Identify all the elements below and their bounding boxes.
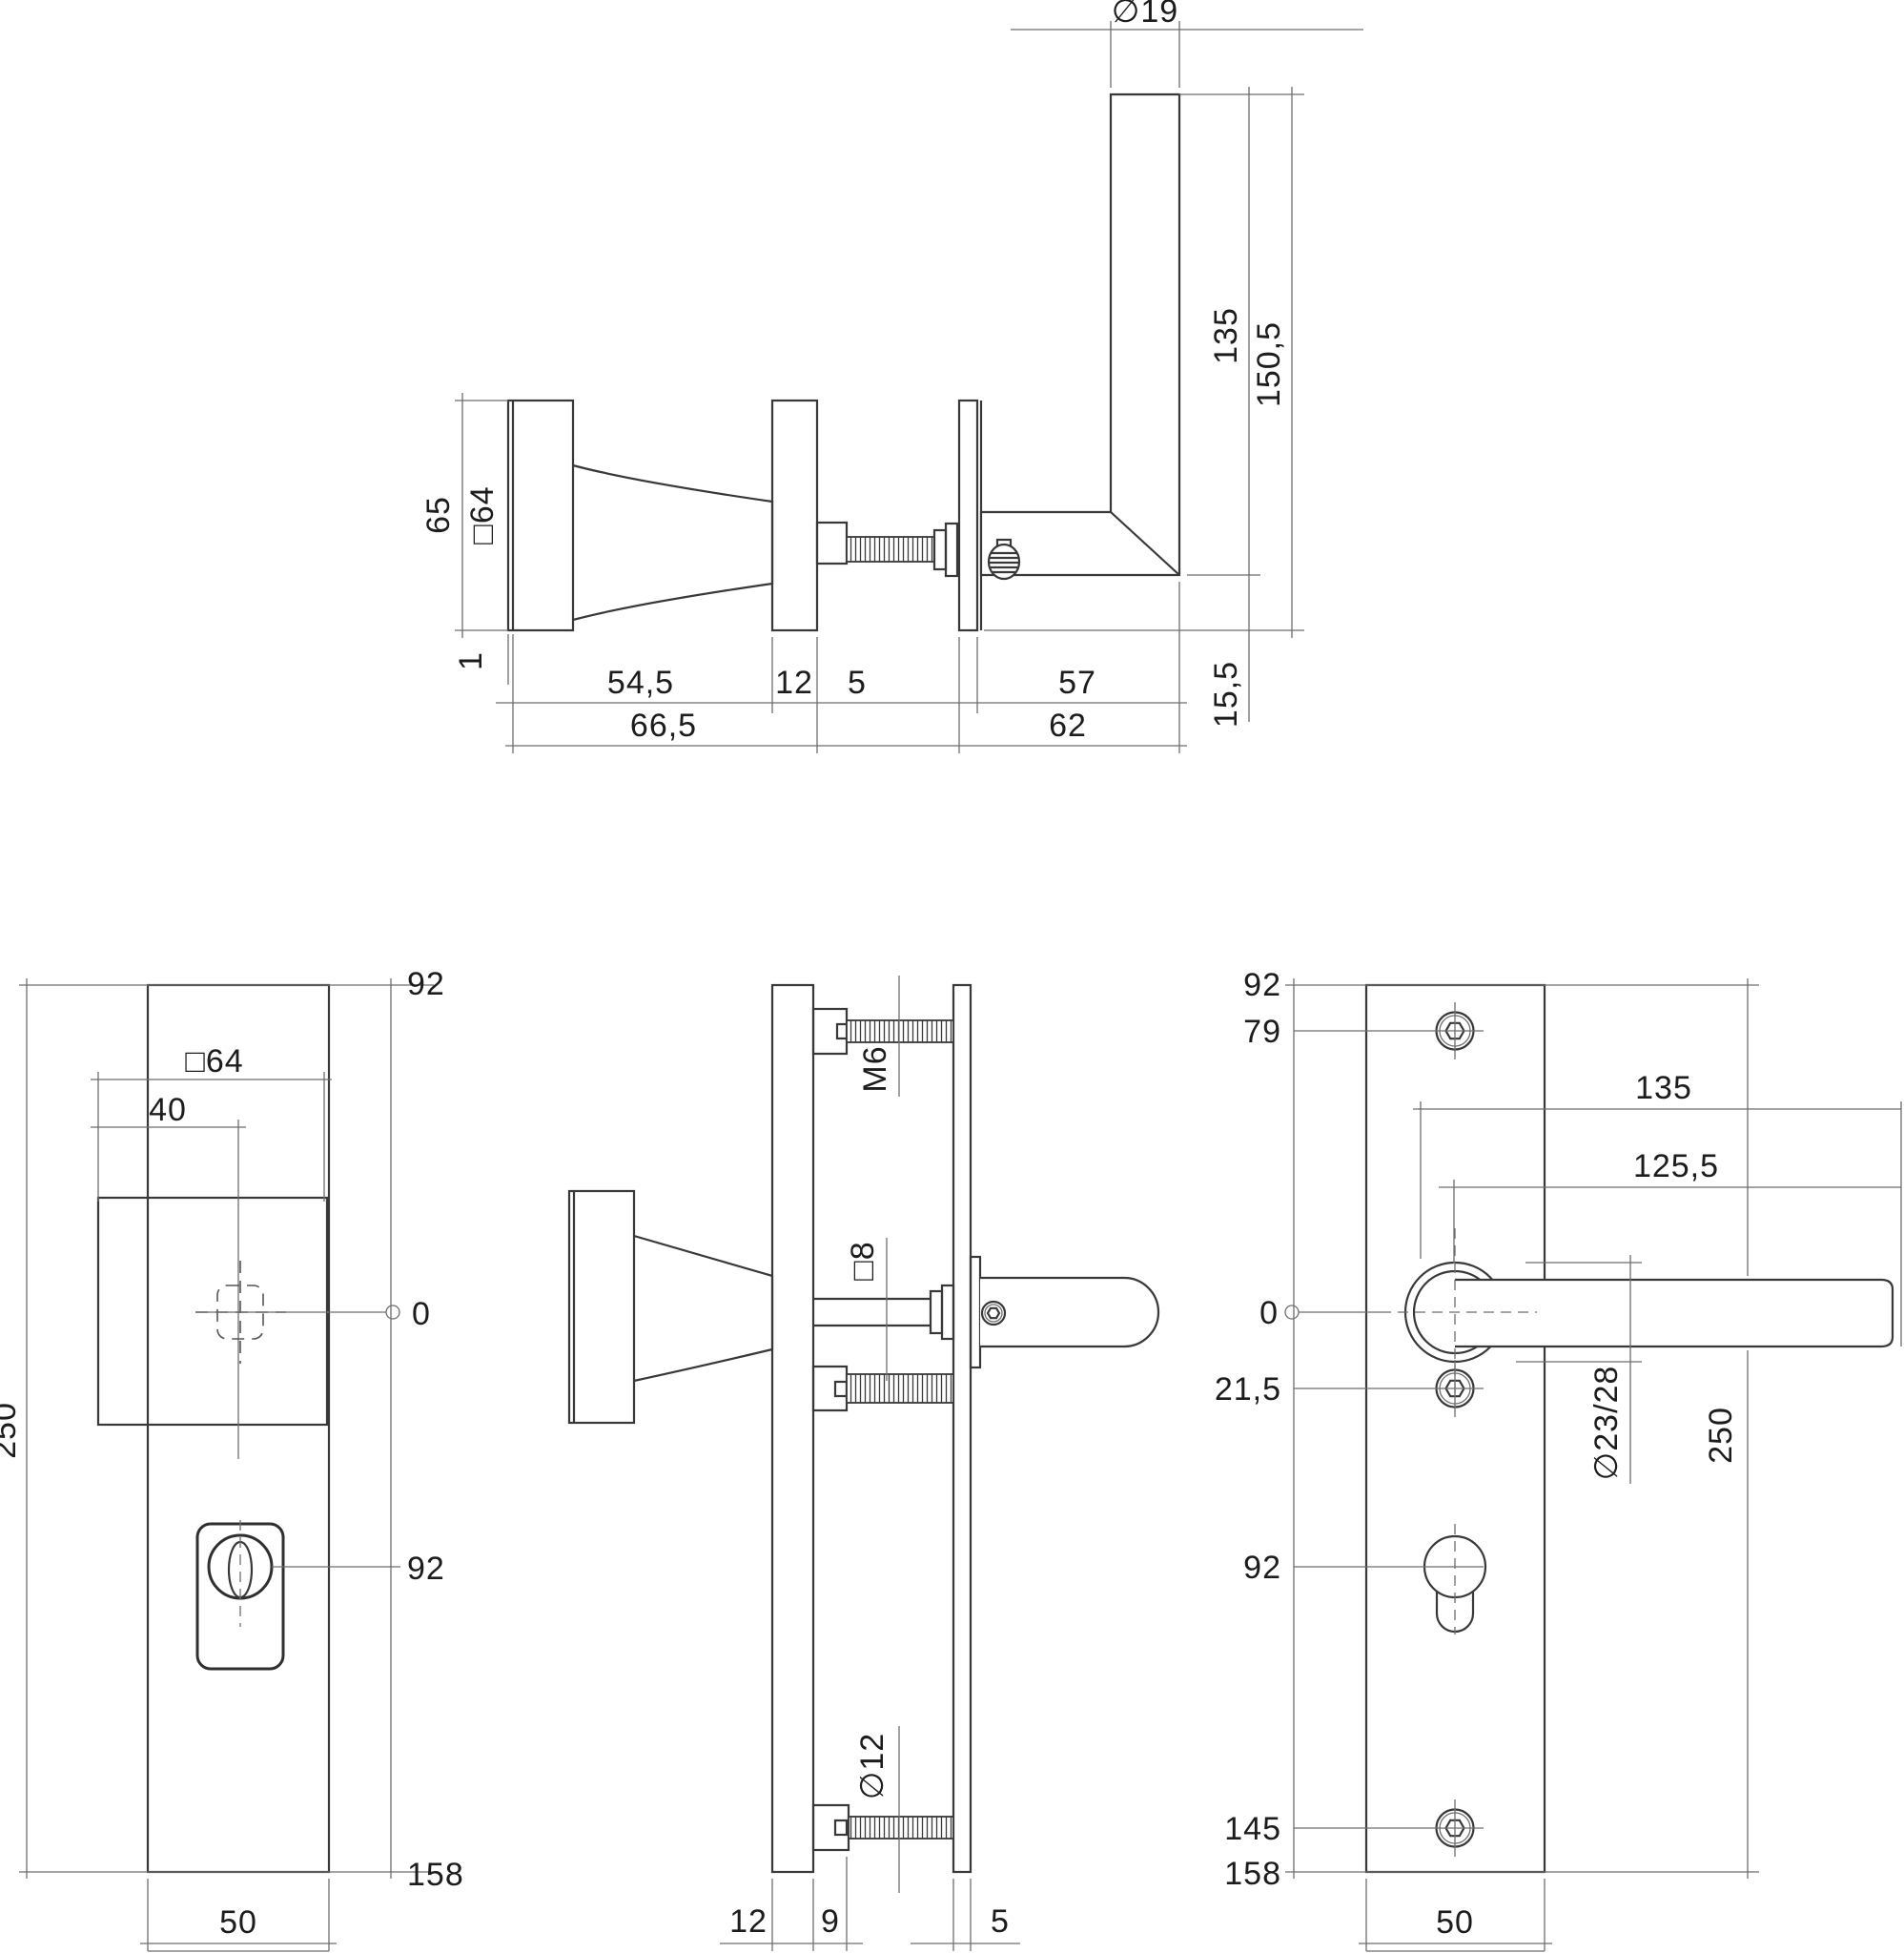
dim-label-0-left-view: 0 [412,1296,431,1332]
dim-label-12-middle: 12 [729,1903,768,1940]
dim-label-21-5: 21,5 [1215,1371,1281,1408]
dim-label-79: 79 [1243,1014,1281,1050]
interior-plate-front-view: 92 79 0 21,5 92 145 158 135 125,5 [1215,967,1901,1951]
cylinder-guard [197,1520,283,1669]
knob-square [98,1198,327,1425]
top-view-dimensions: ∅19 135 150,5 15,5 65 □64 1 [420,0,1363,753]
threaded-spindle [847,537,934,562]
dim-label-40: 40 [149,1092,187,1128]
dim-label-15-5: 15,5 [1208,661,1244,728]
dim-label-0-right-view: 0 [1259,1295,1279,1331]
top-view: ∅19 135 150,5 15,5 65 □64 1 [420,0,1363,753]
spindle-boss [817,523,847,564]
dim-label-sq64-left: □64 [185,1043,243,1079]
dim-label-250-right-view: 250 [1703,1407,1739,1464]
dim-label-sq64-top: □64 [464,485,501,544]
middle-view-dimensions: 12 9 5 [720,1857,1020,1951]
dim-label-5-top: 5 [848,665,867,701]
dim-label-250-left: 250 [0,1402,23,1459]
dim-label-145: 145 [1224,1811,1281,1847]
interior-plate [1366,985,1545,1872]
right-view-dimensions: 92 79 0 21,5 92 145 158 135 125,5 [1215,967,1901,1951]
dim-label-9: 9 [821,1903,840,1940]
dim-label-62: 62 [1049,708,1087,744]
drawing-canvas: ∅19 135 150,5 15,5 65 □64 1 [0,0,1904,1953]
technical-drawing: ∅19 135 150,5 15,5 65 □64 1 [0,0,1904,1953]
exterior-plate-side [772,401,817,630]
dim-label-50-right-view: 50 [1436,1904,1474,1941]
dim-label-92-top-left-view: 92 [407,966,445,1002]
dim-label-dia23-28: ∅23/28 [1588,1366,1625,1481]
dim-label-135: 135 [1208,307,1244,364]
bolt-m6-top: M6 [813,976,953,1097]
exterior-plate-front-view: 250 □64 40 92 0 92 158 50 [0,966,464,1951]
assembly-side-view: M6 □8 ∅12 12 [569,976,1158,1951]
interior-plate-side [959,401,981,630]
exterior-plate-edge [772,985,813,1872]
dim-label-50-left-view: 50 [219,1904,257,1941]
dim-label-65: 65 [420,496,457,534]
knob-head-side [508,401,573,630]
cylinder-hole [1424,1524,1485,1634]
dim-label-12-top: 12 [775,665,813,701]
dim-label-dia12: ∅12 [854,1733,891,1799]
rose-edge [971,1257,980,1367]
dim-label-1: 1 [453,651,489,670]
dim-label-158-right-view: 158 [1224,1856,1281,1892]
dim-label-sq8: □8 [845,1241,881,1280]
dim-label-5-middle: 5 [991,1903,1010,1940]
dim-label-dia19: ∅19 [1112,0,1178,30]
lever-bar [1455,1280,1893,1347]
bolt-middle [813,1367,953,1410]
left-view-dimensions: 250 □64 40 92 0 92 158 50 [0,966,464,1951]
lever-grip-side [980,1278,1158,1347]
spindle-square-8 [813,1285,953,1339]
lever-handle-side [981,94,1179,575]
dim-label-92-cylinder-left-view: 92 [407,1551,445,1587]
dim-label-54-5: 54,5 [607,665,674,701]
dim-label-150-5: 150,5 [1251,321,1287,407]
dim-label-m6: M6 [857,1045,893,1092]
dim-label-57: 57 [1058,665,1096,701]
dim-label-66-5: 66,5 [630,708,697,744]
knob-neck-side [573,465,772,620]
dim-label-125-5: 125,5 [1633,1148,1719,1184]
dim-label-92-top-right-view: 92 [1243,967,1281,1003]
interior-plate-edge [953,985,971,1872]
spindle-label: □8 [845,1238,887,1381]
dim-label-158-left-view: 158 [407,1857,464,1893]
washers [934,524,957,576]
dim-label-92-cylinder-right-view: 92 [1243,1550,1281,1586]
dim-label-135-right-view: 135 [1635,1070,1692,1106]
knob-side [569,1191,772,1423]
bolt-dia12-bottom: ∅12 [813,1726,953,1893]
